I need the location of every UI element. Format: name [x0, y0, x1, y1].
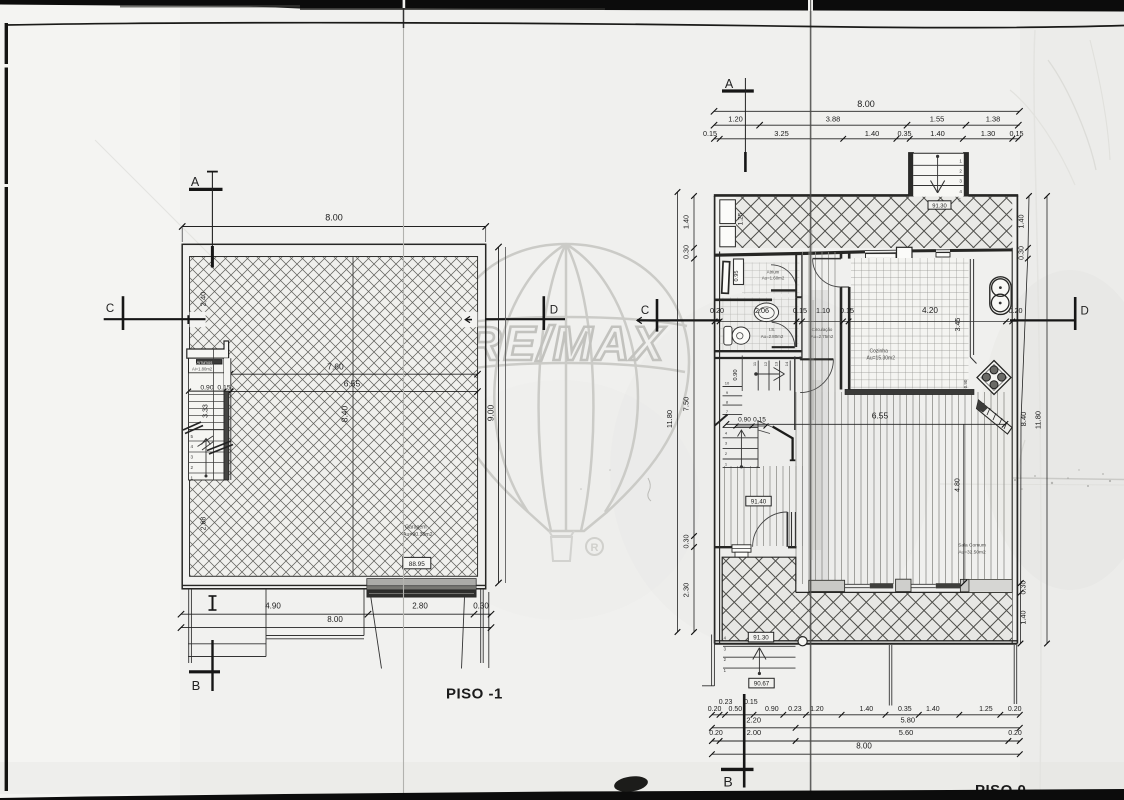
svg-text:11.80: 11.80: [665, 410, 674, 428]
svg-text:90.67: 90.67: [754, 681, 770, 688]
svg-text:0.23: 0.23: [719, 699, 733, 706]
svg-text:0.20: 0.20: [710, 306, 724, 315]
svg-text:Garagem: Garagem: [405, 525, 427, 531]
svg-text:4: 4: [191, 444, 194, 449]
svg-text:1.20: 1.20: [728, 114, 743, 123]
svg-text:0.20: 0.20: [1008, 730, 1022, 737]
svg-text:1: 1: [191, 475, 194, 480]
svg-text:0.15: 0.15: [753, 417, 766, 424]
svg-text:0.15: 0.15: [793, 306, 807, 315]
svg-text:Au=2.80m2: Au=2.80m2: [761, 334, 784, 339]
svg-text:10: 10: [725, 381, 730, 386]
svg-text:3.88: 3.88: [826, 114, 841, 123]
svg-text:3.25: 3.25: [774, 129, 789, 138]
svg-text:Atrium: Atrium: [767, 270, 780, 275]
svg-text:0.30: 0.30: [1016, 246, 1025, 260]
svg-text:D: D: [550, 305, 558, 317]
svg-text:Cozinha: Cozinha: [870, 349, 889, 355]
svg-text:1.25: 1.25: [738, 212, 745, 225]
svg-text:0.15: 0.15: [840, 306, 854, 315]
svg-text:Au=1.60m2: Au=1.60m2: [762, 276, 785, 281]
svg-text:1.40: 1.40: [859, 706, 873, 713]
svg-text:0.90: 0.90: [200, 385, 213, 392]
svg-text:12: 12: [763, 361, 768, 366]
svg-text:A: A: [725, 77, 734, 91]
svg-text:8.00: 8.00: [325, 213, 343, 223]
svg-text:0.20: 0.20: [1009, 306, 1023, 315]
svg-text:Ai=1.80m2: Ai=1.80m2: [192, 367, 213, 372]
svg-text:4.20: 4.20: [922, 306, 938, 315]
svg-text:13: 13: [774, 361, 779, 366]
svg-text:2.30: 2.30: [682, 583, 691, 598]
svg-text:0.90: 0.90: [963, 379, 968, 388]
svg-text:14: 14: [784, 361, 789, 366]
svg-text:0.30: 0.30: [1019, 581, 1028, 595]
svg-text:0.30: 0.30: [473, 602, 489, 611]
svg-text:0.90: 0.90: [738, 417, 751, 424]
svg-text:3.45: 3.45: [955, 318, 962, 332]
svg-text:2.06: 2.06: [755, 306, 769, 315]
svg-text:8.40: 8.40: [1019, 412, 1028, 427]
svg-text:4.90: 4.90: [265, 602, 281, 611]
svg-text:B: B: [723, 774, 732, 790]
svg-text:8.00: 8.00: [327, 615, 343, 624]
svg-text:5.60: 5.60: [899, 728, 914, 737]
svg-text:Sala Comum: Sala Comum: [958, 543, 986, 549]
svg-text:1.25: 1.25: [979, 706, 993, 713]
svg-text:0.35: 0.35: [898, 706, 912, 713]
svg-text:3: 3: [959, 179, 962, 184]
svg-text:2.20: 2.20: [746, 715, 761, 724]
svg-text:2.80: 2.80: [412, 602, 428, 611]
svg-text:I.S.: I.S.: [769, 327, 776, 332]
svg-text:0.15: 0.15: [1010, 129, 1024, 138]
svg-text:0.95: 0.95: [734, 271, 740, 282]
svg-text:4: 4: [959, 189, 962, 194]
svg-text:91.30: 91.30: [753, 635, 769, 642]
svg-text:5: 5: [958, 198, 961, 203]
svg-text:0.90: 0.90: [733, 369, 739, 380]
svg-text:6.55: 6.55: [872, 411, 889, 421]
svg-text:2.68: 2.68: [201, 517, 208, 531]
svg-text:1.40: 1.40: [1018, 611, 1027, 625]
svg-text:9.00: 9.00: [486, 404, 496, 421]
svg-text:1.40: 1.40: [926, 706, 940, 713]
svg-text:1.40: 1.40: [865, 129, 880, 138]
svg-text:4.80: 4.80: [955, 478, 962, 492]
svg-text:Au=90.30m2: Au=90.30m2: [403, 532, 433, 538]
svg-text:88.95: 88.95: [409, 561, 425, 568]
svg-text:7.60: 7.60: [327, 362, 344, 372]
svg-text:3: 3: [191, 455, 194, 460]
svg-text:91.40: 91.40: [751, 499, 767, 506]
svg-text:91.30: 91.30: [932, 203, 947, 209]
svg-text:1.20: 1.20: [810, 706, 824, 713]
svg-text:0.30: 0.30: [682, 535, 691, 549]
svg-text:0.23: 0.23: [788, 706, 802, 713]
svg-text:Arrumos: Arrumos: [197, 360, 213, 365]
svg-text:11.80: 11.80: [1034, 411, 1043, 429]
svg-text:8.00: 8.00: [857, 99, 875, 109]
svg-text:3.33: 3.33: [203, 404, 210, 418]
svg-text:2: 2: [191, 465, 194, 470]
svg-text:0.30: 0.30: [682, 245, 691, 259]
svg-text:PISO -1: PISO -1: [446, 686, 503, 703]
svg-text:A: A: [191, 175, 200, 189]
svg-text:1: 1: [959, 159, 962, 164]
svg-text:2,40: 2,40: [199, 292, 208, 307]
svg-text:5: 5: [191, 434, 194, 439]
svg-text:2: 2: [959, 169, 962, 174]
svg-text:1.55: 1.55: [930, 114, 945, 123]
svg-text:0.90: 0.90: [765, 706, 779, 713]
svg-text:6.55: 6.55: [344, 379, 361, 389]
svg-text:0.20: 0.20: [1008, 706, 1022, 713]
svg-text:C: C: [106, 303, 114, 315]
svg-text:D: D: [1081, 306, 1089, 318]
svg-text:1.40: 1.40: [930, 129, 945, 138]
svg-text:Au=15.30m2: Au=15.30m2: [867, 356, 896, 362]
svg-text:7.50: 7.50: [682, 397, 691, 412]
svg-text:0.15: 0.15: [744, 699, 758, 706]
svg-text:8.40: 8.40: [340, 405, 350, 422]
svg-text:B: B: [192, 678, 201, 693]
svg-text:R: R: [591, 542, 599, 554]
svg-text:0.15: 0.15: [703, 129, 717, 138]
svg-text:0.35: 0.35: [898, 129, 912, 138]
svg-text:0.20: 0.20: [709, 730, 723, 737]
svg-text:1.40: 1.40: [1017, 215, 1026, 229]
svg-text:RE/MAX: RE/MAX: [467, 318, 667, 371]
svg-text:1.40: 1.40: [682, 215, 691, 229]
svg-text:5.80: 5.80: [900, 715, 915, 724]
svg-text:C: C: [641, 305, 649, 317]
svg-text:8.00: 8.00: [856, 742, 872, 751]
svg-text:0.50: 0.50: [728, 706, 742, 713]
svg-text:Au=32.50m2: Au=32.50m2: [958, 550, 986, 556]
svg-text:0.20: 0.20: [708, 706, 722, 713]
svg-text:1.38: 1.38: [986, 114, 1001, 123]
svg-text:2.00: 2.00: [747, 728, 762, 737]
svg-text:1.30: 1.30: [981, 129, 996, 138]
